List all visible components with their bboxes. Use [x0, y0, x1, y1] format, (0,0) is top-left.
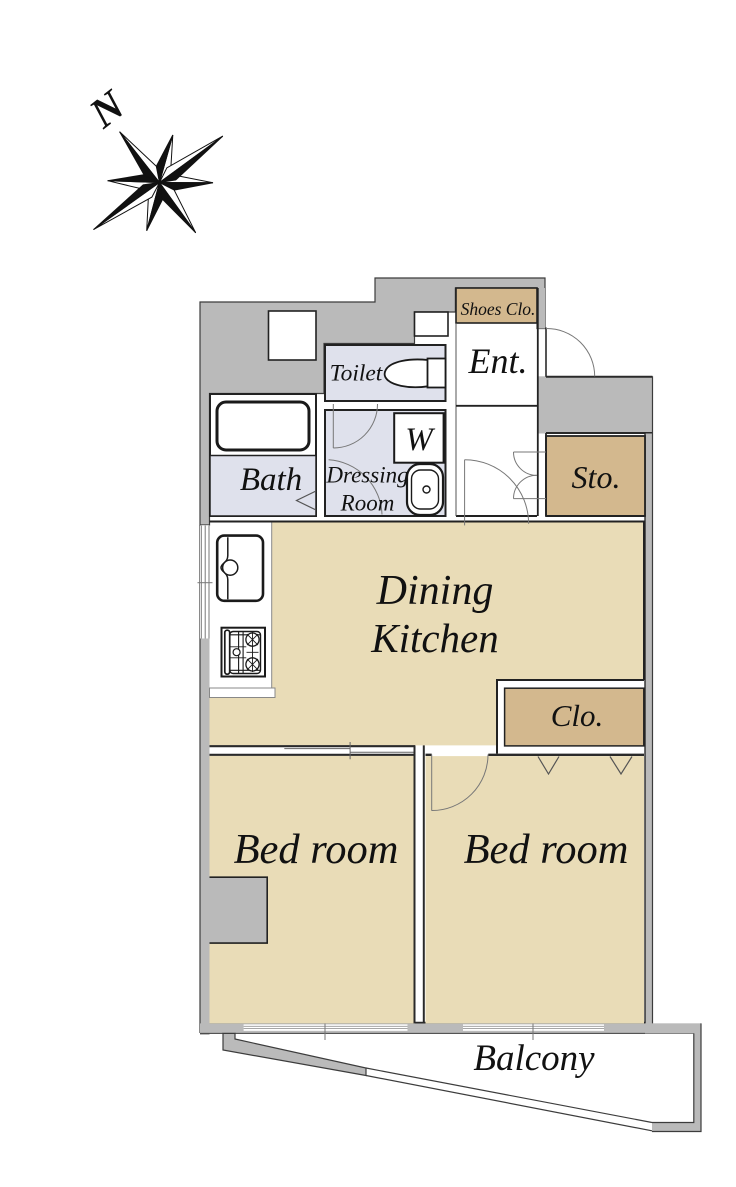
svg-text:Toilet: Toilet — [330, 361, 383, 387]
svg-text:Dining: Dining — [376, 568, 494, 614]
svg-text:Bed room: Bed room — [234, 826, 399, 873]
svg-text:Bed room: Bed room — [464, 826, 629, 873]
svg-text:Bath: Bath — [240, 462, 302, 498]
svg-text:Balcony: Balcony — [473, 1038, 595, 1079]
svg-text:Clo.: Clo. — [551, 698, 604, 733]
svg-text:Shoes Clo.: Shoes Clo. — [461, 299, 536, 319]
svg-text:N: N — [81, 81, 135, 138]
svg-text:Dressing: Dressing — [325, 463, 408, 488]
svg-text:Sto.: Sto. — [572, 459, 621, 495]
svg-text:Kitchen: Kitchen — [370, 615, 499, 661]
svg-text:Ent.: Ent. — [468, 341, 528, 381]
svg-text:Room: Room — [340, 491, 395, 516]
svg-text:W: W — [405, 422, 435, 458]
